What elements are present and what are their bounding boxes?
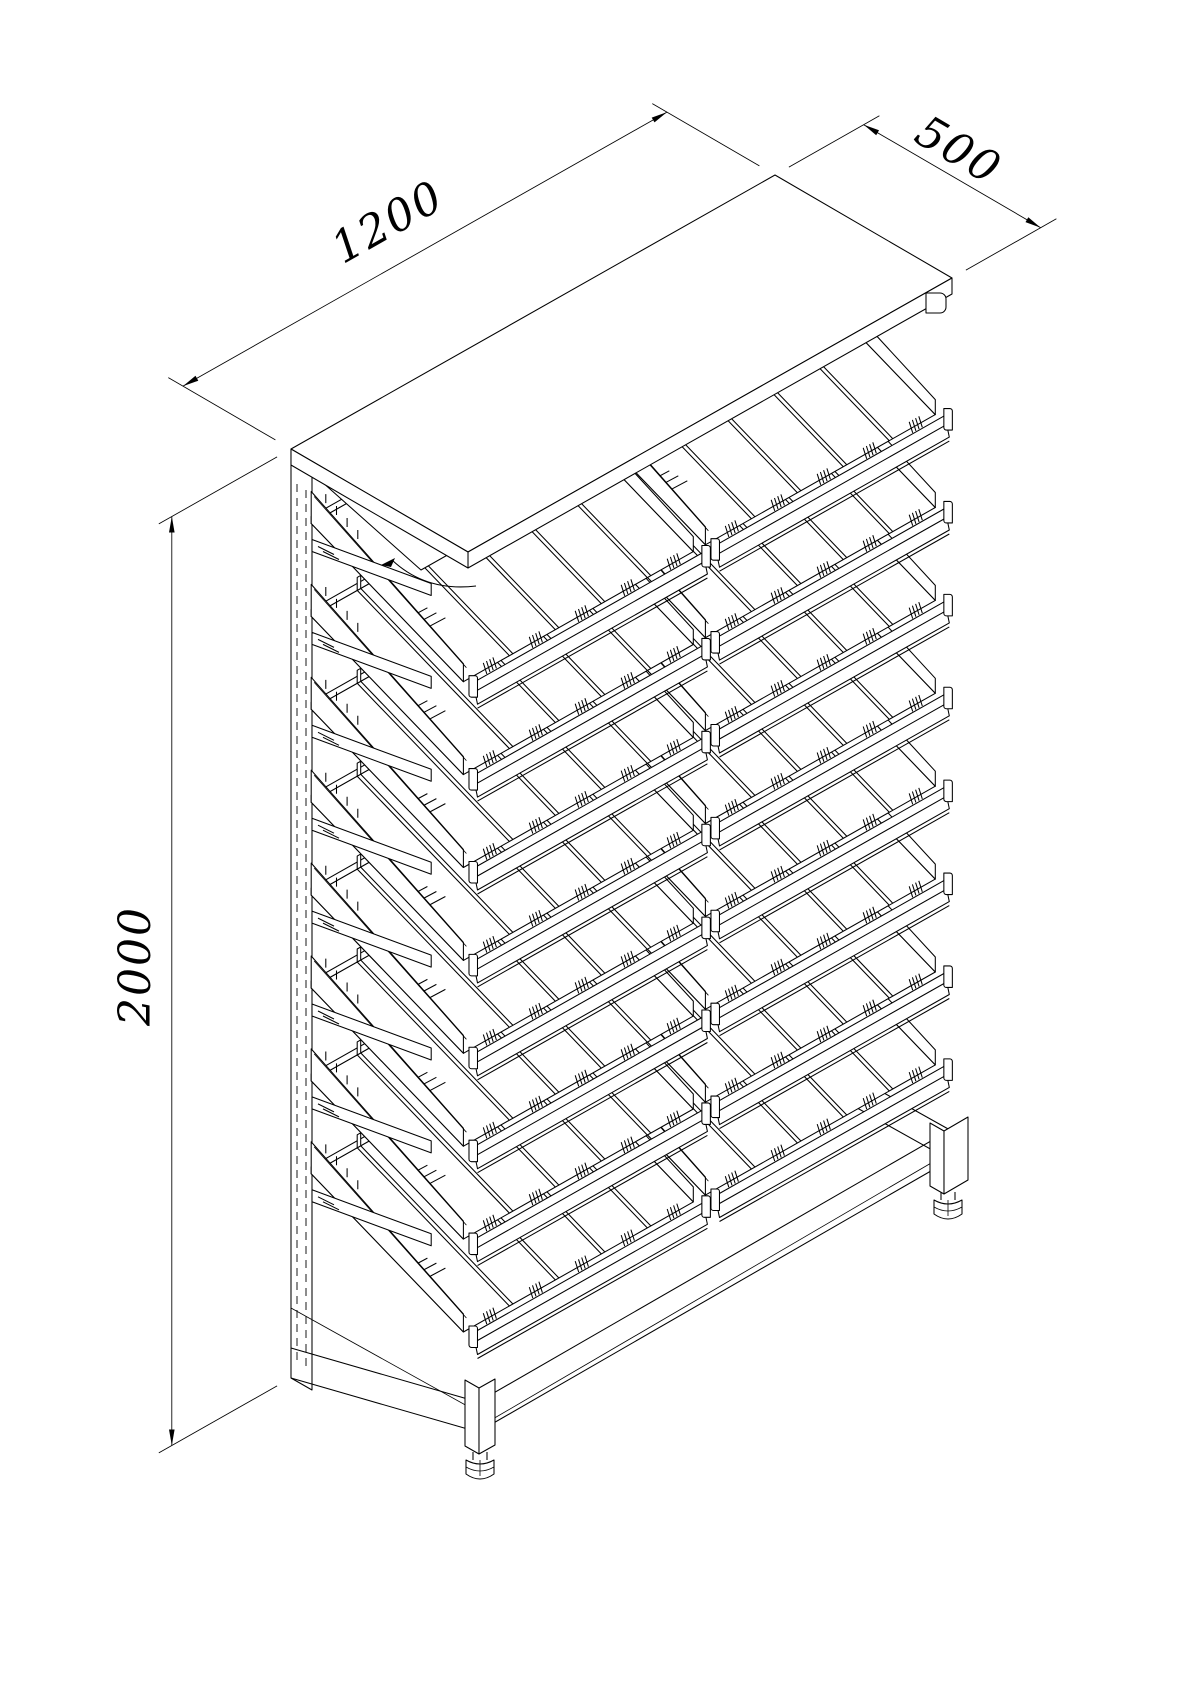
dimension-height-label: 2000 — [110, 906, 161, 1027]
rack-geometry — [159, 104, 1057, 1479]
technical-drawing-page: 1200 500 2000 — [0, 0, 1190, 1683]
dimension-width-label: 1200 — [323, 171, 453, 274]
isometric-drawing: 1200 500 2000 — [0, 0, 1190, 1683]
dimension-depth-label: 500 — [907, 106, 1010, 195]
